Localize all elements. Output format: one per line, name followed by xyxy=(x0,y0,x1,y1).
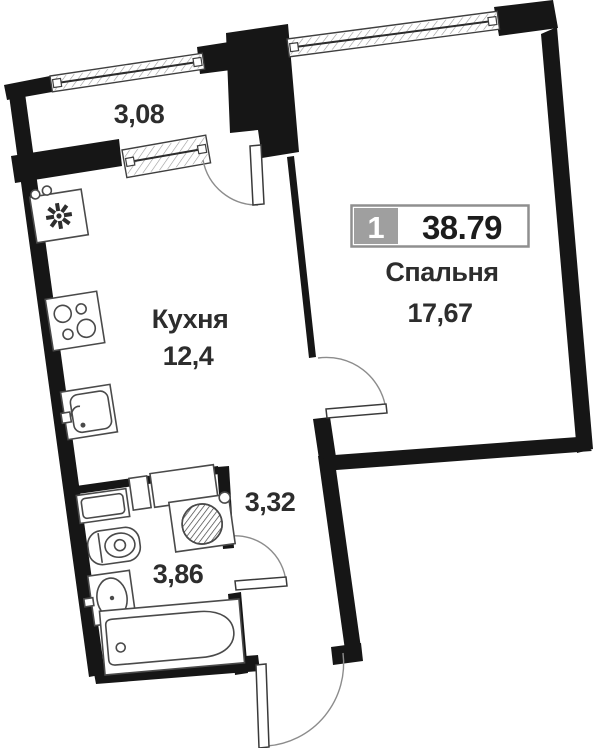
floorplan-canvas: 1 38.79 3,08 Кухня 12,4 Спальня 17,67 3,… xyxy=(0,0,600,748)
badge-rooms-count: 1 xyxy=(367,210,384,245)
wall-bedroom-top-right-block xyxy=(494,0,558,36)
wall-bedroom-bottom xyxy=(321,437,592,471)
floorplan-svg: 1 38.79 3,08 Кухня 12,4 Спальня 17,67 3,… xyxy=(0,0,600,748)
bedroom-door-icon xyxy=(318,357,387,418)
hallway-area-label: 3,32 xyxy=(245,487,296,517)
kitchen-name-label: Кухня xyxy=(152,304,228,334)
bathtub-icon xyxy=(99,599,244,675)
kitchen-window-icon xyxy=(122,135,211,177)
entrance-door-icon xyxy=(256,653,344,748)
washing-machine-icon xyxy=(168,491,236,552)
bath-shelf-icon xyxy=(129,476,151,510)
wall-entrance-stub xyxy=(331,643,363,665)
wall-right-outer xyxy=(541,27,593,453)
stove-icon xyxy=(45,291,104,350)
wall-hallway-right xyxy=(318,455,361,650)
bath-cabinet-icon xyxy=(76,489,129,524)
balcony-door-icon xyxy=(203,145,264,205)
toilet-icon xyxy=(86,526,142,567)
kitchen-sink-icon xyxy=(58,384,118,440)
bathroom-area-label: 3,86 xyxy=(153,559,204,589)
bathroom-door-icon xyxy=(231,536,287,590)
kitchen-sink-star-icon xyxy=(28,181,88,243)
wall-kitchen-bedroom xyxy=(287,156,316,358)
bedroom-name-label: Спальня xyxy=(385,257,498,287)
kitchen-area-label: 12,4 xyxy=(163,341,214,371)
wall-bedroom-door-stub xyxy=(313,417,336,459)
badge-total-area: 38.79 xyxy=(422,209,502,246)
plumbing-point xyxy=(74,545,80,551)
balcony-area-label: 3,08 xyxy=(114,99,165,129)
wall-balcony-corner xyxy=(4,76,52,100)
bedroom-window-icon xyxy=(287,11,500,57)
apartment-badge: 1 38.79 xyxy=(352,206,529,247)
bedroom-area-label: 17,67 xyxy=(407,298,472,328)
balcony-window-icon xyxy=(50,53,205,92)
